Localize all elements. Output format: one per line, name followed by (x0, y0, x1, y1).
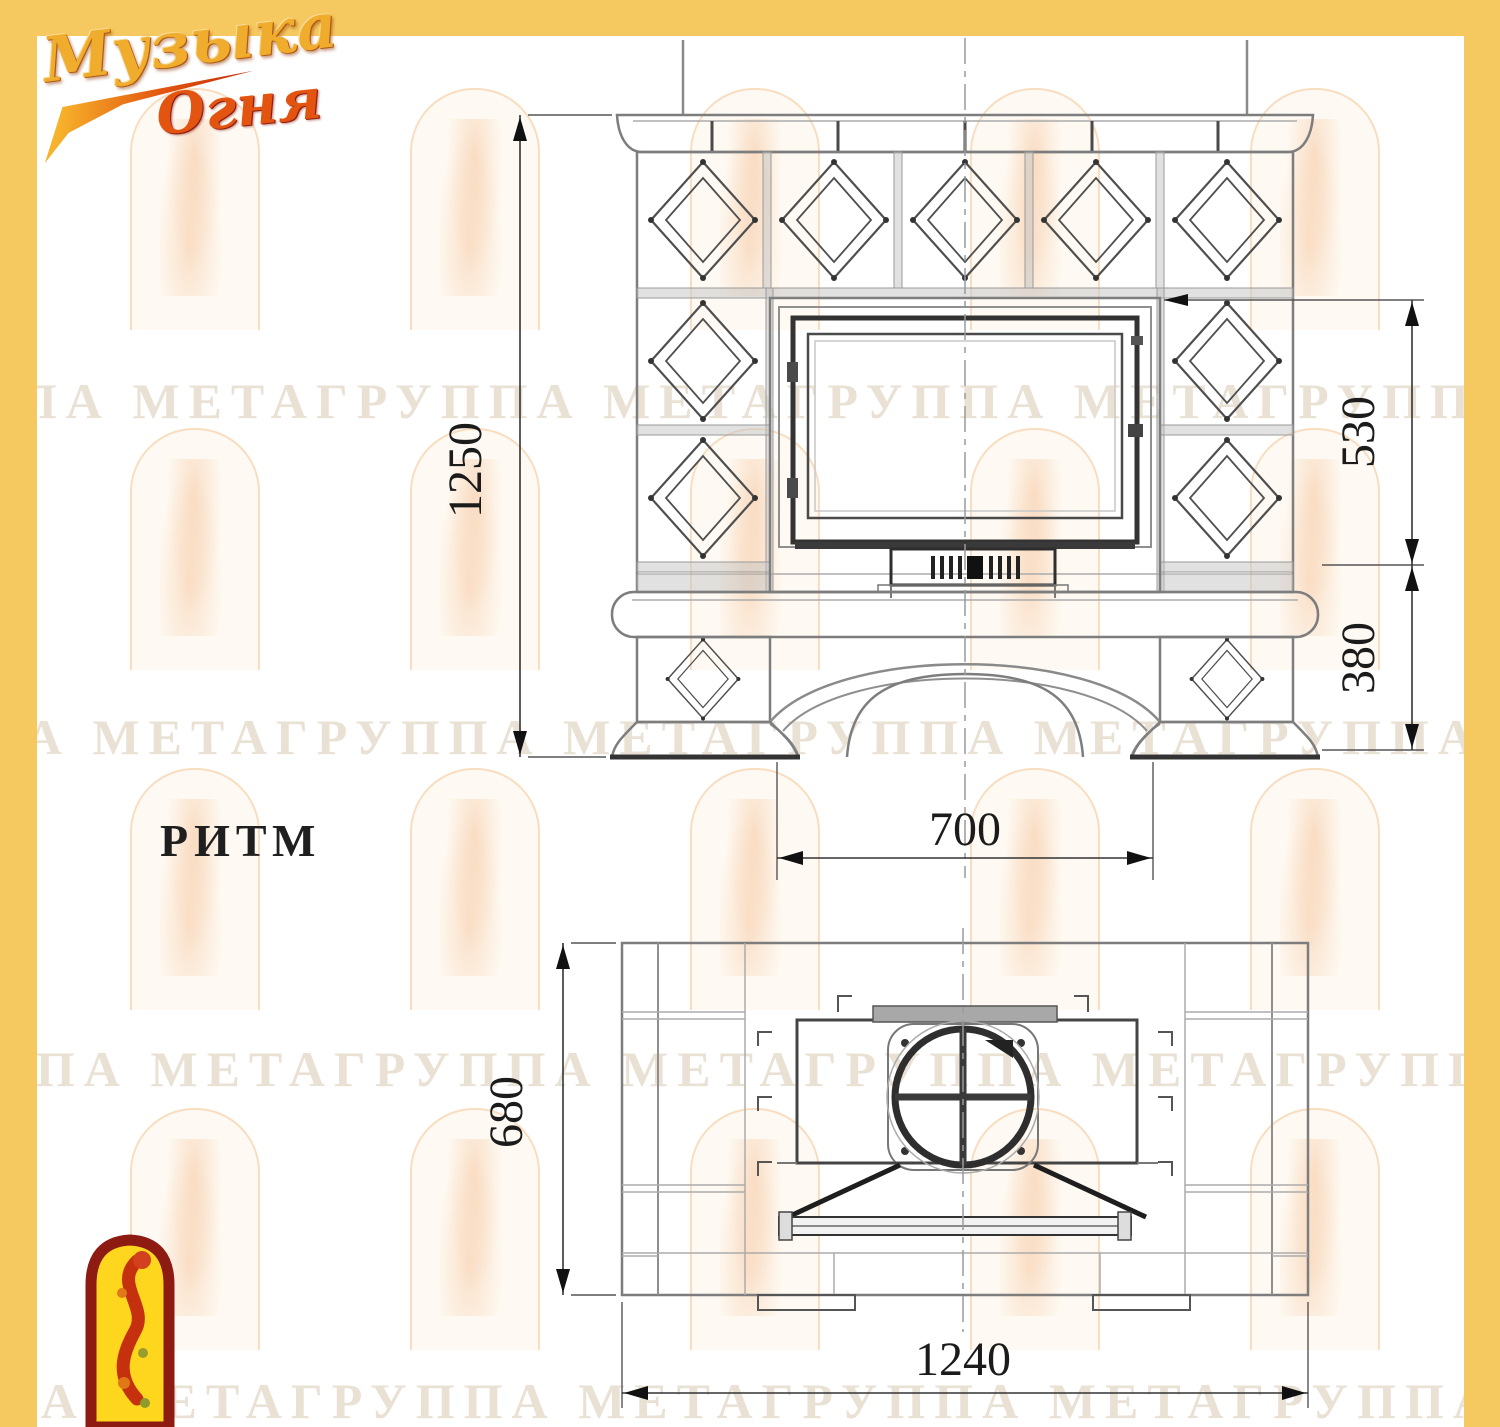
dim-label-380: 380 (1332, 622, 1385, 694)
fire-figure-icon (84, 1233, 176, 1427)
front-elevation-drawing: 1250 700 530 (439, 38, 1424, 880)
dimension-total-height: 1250 (439, 115, 612, 757)
fire-figure-logo (84, 1233, 176, 1427)
dim-label-1240: 1240 (915, 1333, 1011, 1386)
damper-mark (985, 1040, 1013, 1058)
door-handle (1128, 424, 1143, 437)
door-latch (1131, 336, 1143, 345)
dim-label-530: 530 (1332, 396, 1385, 468)
base-left (612, 722, 798, 757)
leg-right (1160, 637, 1293, 722)
model-name: РИТМ (160, 814, 321, 867)
dimension-depth: 680 (480, 943, 616, 1295)
plan-foot-left (758, 1295, 855, 1310)
door-hinge-top (787, 362, 798, 382)
flue-collar (873, 1006, 1057, 1022)
firebox-insert-plan (777, 1006, 1158, 1240)
dim-label-1250: 1250 (439, 422, 492, 518)
page: ППА МЕТАГРУППА МЕТАГРУППА МЕТАГРУППА МЕТ… (0, 0, 1500, 1427)
base-right (1132, 722, 1318, 757)
door-hinge-bottom (787, 478, 798, 498)
plan-view-drawing: 680 1240 (480, 928, 1308, 1408)
dim-label-680: 680 (480, 1076, 533, 1148)
logo-muzyka-ognya: Музыка Огня (28, 0, 328, 180)
plan-foot-right (1093, 1295, 1190, 1310)
dim-label-700: 700 (929, 803, 1001, 856)
dimension-total-width: 1240 (622, 1302, 1308, 1408)
leg-left (637, 637, 770, 722)
fireplace-technical-drawing: 1250 700 530 (0, 0, 1500, 1427)
